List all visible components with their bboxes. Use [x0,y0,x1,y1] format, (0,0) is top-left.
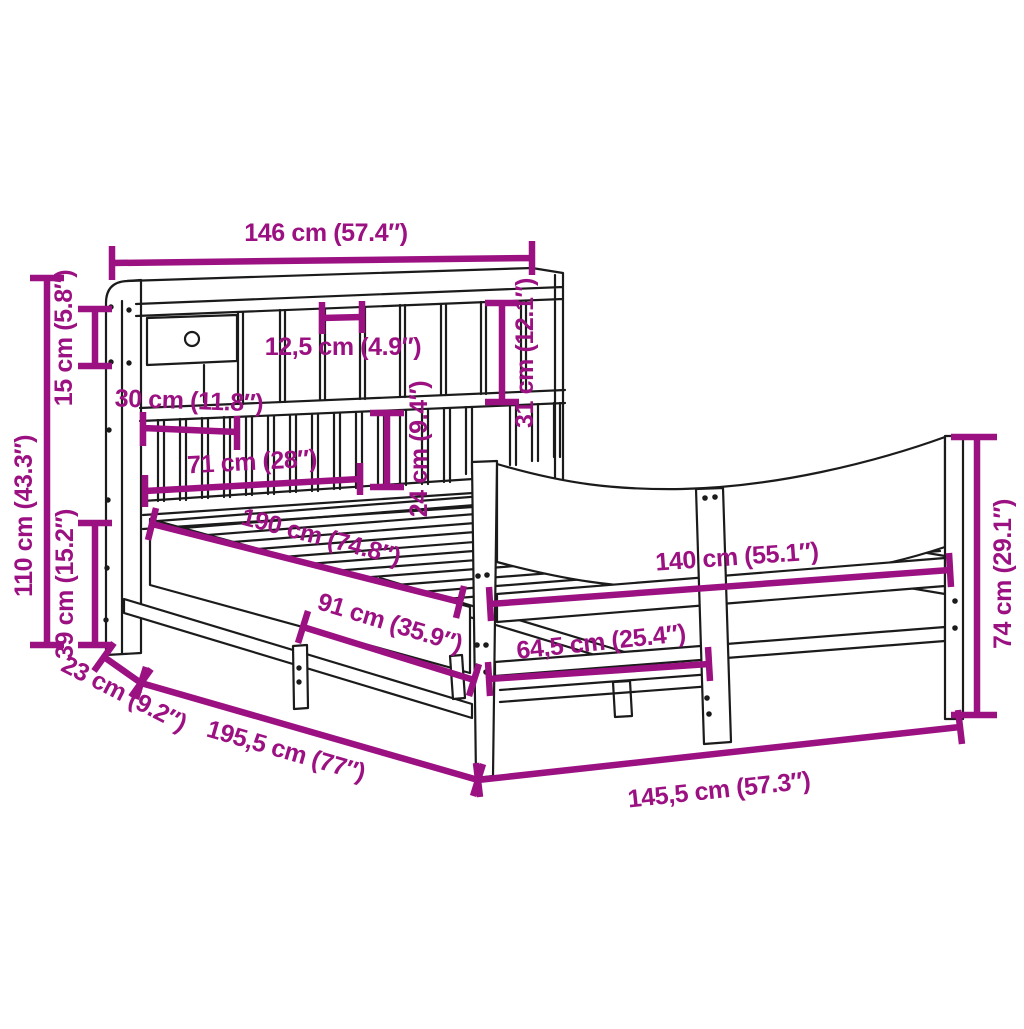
dim-label-headboard-width: 146 cm (57.4″) [244,219,407,247]
headboard-drawer [147,315,237,365]
dim-label-headboard-total-height: 110 cm (43.3″) [10,435,38,597]
dim-label-top-shelf-height: 15 cm (5.8″) [50,270,78,406]
dim-label-drawer-section-width: 30 cm (11.8″) [114,384,263,417]
dim-label-shelf-to-base-gap: 24 cm (9.4″) [405,381,433,517]
dimension-top-shelf-height: 15 cm (5.8″) [50,270,112,406]
dim-line [136,667,483,796]
footboard-art [472,436,963,778]
dim-label-frame-base-height: 39 cm (15.2″) [51,509,79,659]
side-rail-leg [293,645,308,709]
dim-line [322,301,362,334]
dim-label-cubby-height: 31 cm (12.1″) [511,278,539,428]
dim-label-slat-section-width: 71 cm (28″) [186,445,317,480]
dim-label-footboard-height: 74 cm (29.1″) [989,499,1017,649]
centre-leg-front [613,681,632,717]
dimension-frame-base-height: 39 cm (15.2″) [51,509,112,659]
dimension-total-length: 195,5 cm (77″) [136,667,483,796]
diagram-canvas: 146 cm (57.4″) 110 cm (43.3″) 15 cm (5.8… [0,0,1024,1024]
bed-dimension-diagram: 146 cm (57.4″) 110 cm (43.3″) 15 cm (5.8… [0,0,1024,1024]
dim-label-cubby-width: 12,5 cm (4.9″) [265,333,422,361]
dim-label-total-width: 145,5 cm (57.3″) [626,766,811,813]
